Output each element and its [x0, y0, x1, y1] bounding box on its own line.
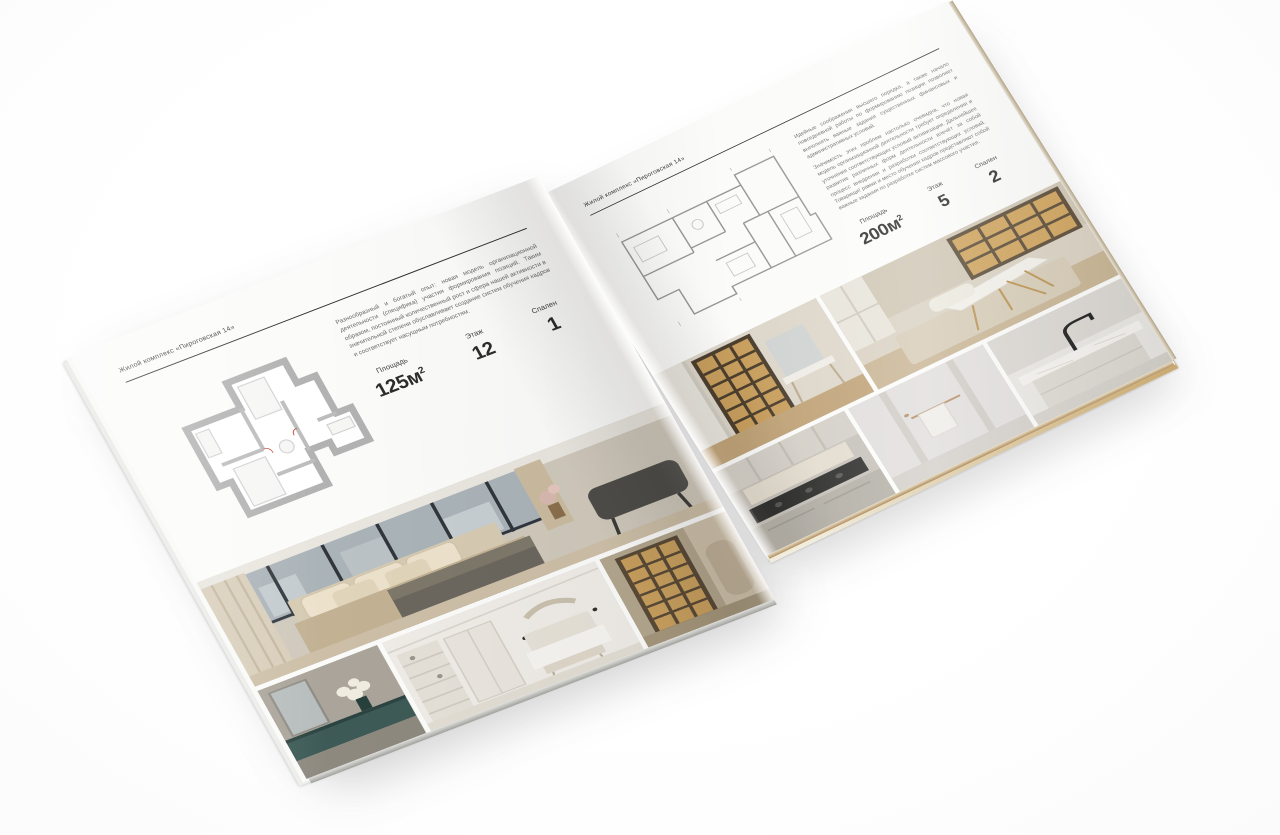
- stat-floor: Этаж 5: [925, 179, 956, 213]
- brochure-scene: Жилой комплекс «Пироговская 14»: [0, 0, 1280, 835]
- stat-area: Площадь 125м2: [365, 352, 431, 402]
- stat-area: Площадь 200м2: [850, 202, 909, 249]
- stat-floor: Этаж 12: [462, 326, 500, 365]
- stat-bedrooms: Спален 1: [530, 298, 572, 339]
- stat-bedrooms: Спален 2: [973, 153, 1011, 190]
